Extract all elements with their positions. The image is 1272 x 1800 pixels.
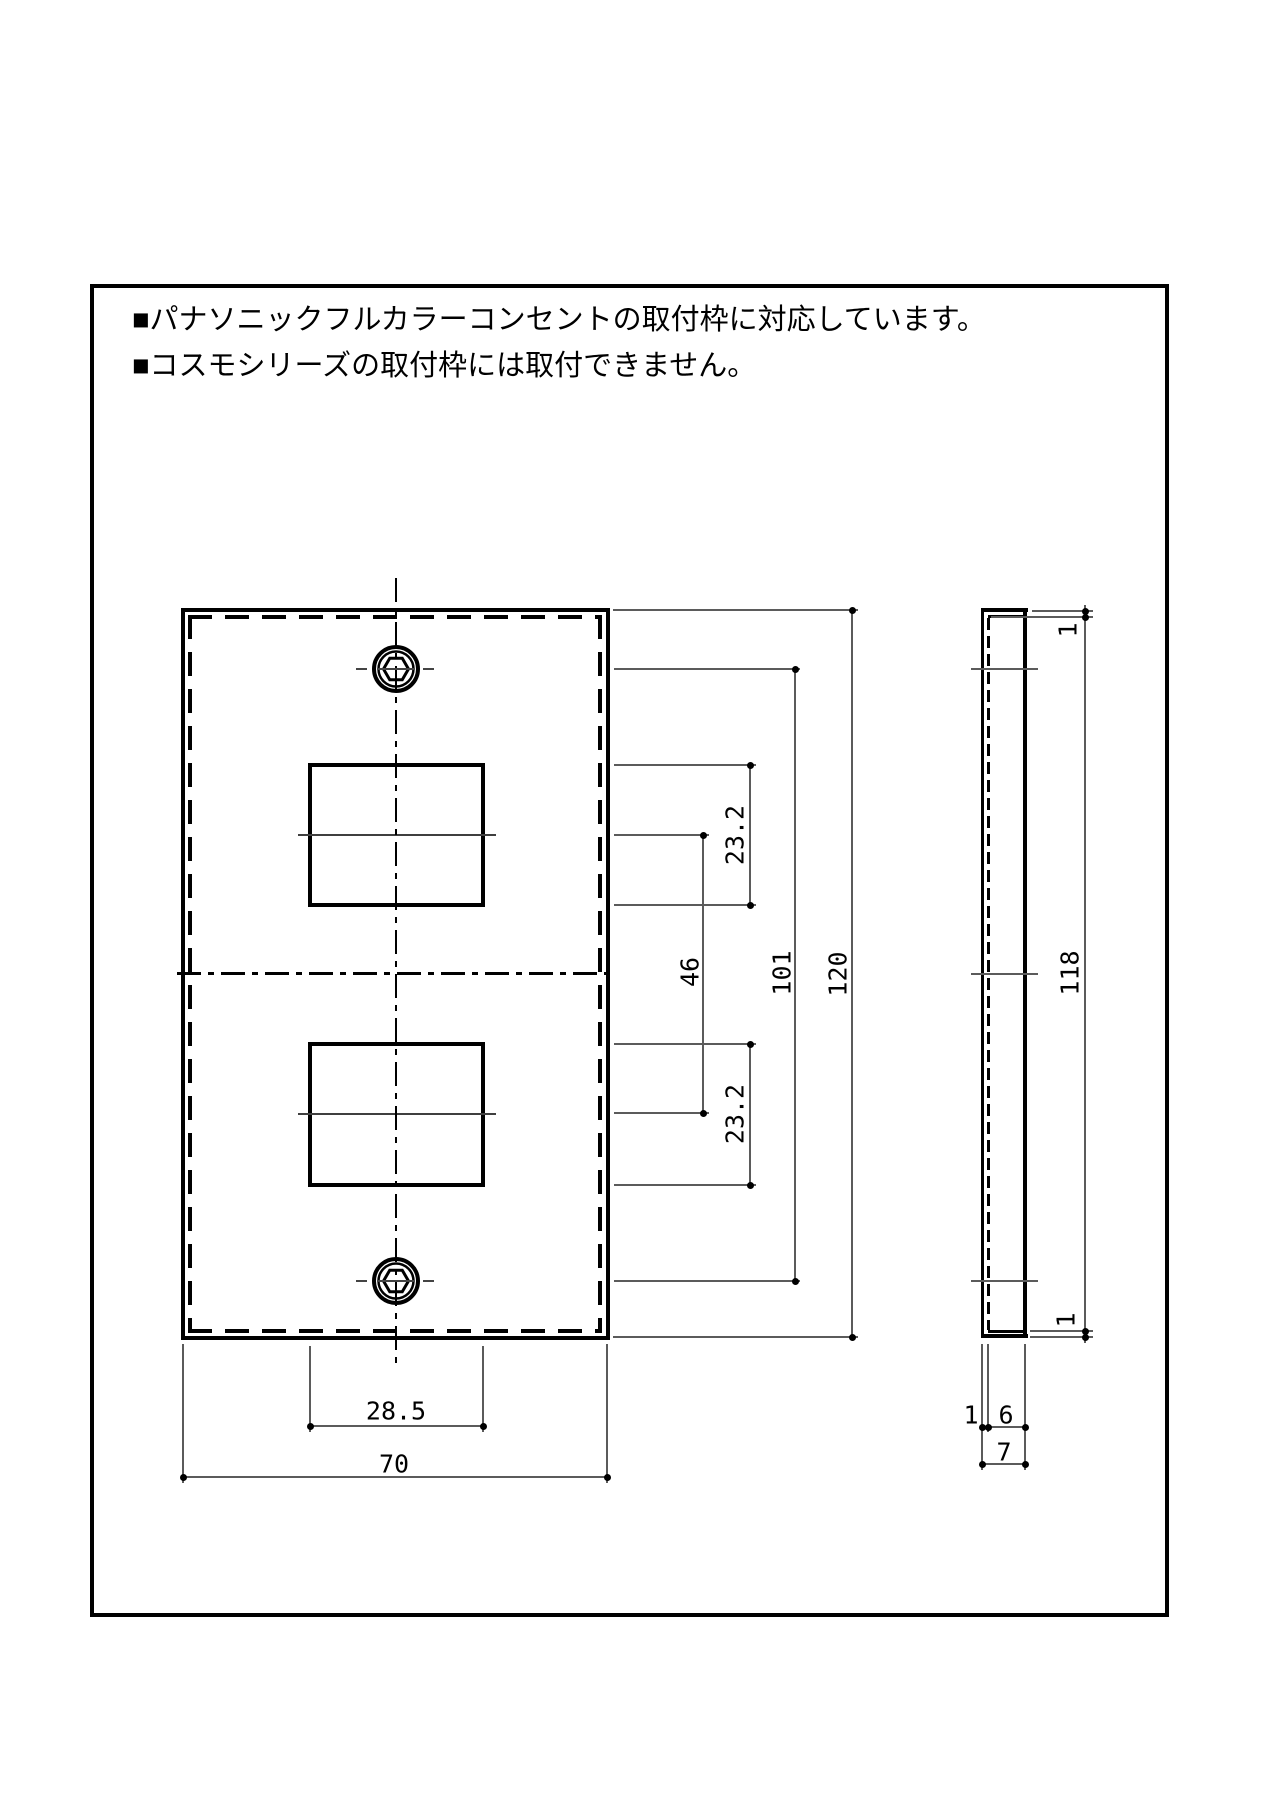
dim-endpoint xyxy=(1022,1461,1029,1468)
dim-endpoint xyxy=(1082,1334,1089,1341)
extension-line xyxy=(614,764,756,766)
dim-endpoint xyxy=(747,902,754,909)
dim-inner-height: 118 xyxy=(1058,950,1083,995)
dim-endpoint xyxy=(700,832,707,839)
dim-endpoint xyxy=(792,666,799,673)
screw-hole-top xyxy=(353,641,439,697)
side-mid-centerline xyxy=(971,973,1038,975)
extension-line xyxy=(1024,1344,1026,1470)
dim-endpoint xyxy=(747,1041,754,1048)
dim-opening-height-top: 23.2 xyxy=(723,805,748,865)
side-bottom-edge xyxy=(981,1334,1028,1338)
note-line-2: ■コスモシリーズの取付枠には取付できません。 xyxy=(132,349,756,384)
side-screw-top-line xyxy=(971,668,1038,670)
dim-endpoint xyxy=(792,1278,799,1285)
extension-line xyxy=(614,1112,709,1114)
dim-endpoint xyxy=(849,1334,856,1341)
extension-line xyxy=(991,616,1093,618)
extension-line xyxy=(182,1344,184,1483)
dim-endpoint xyxy=(604,1474,611,1481)
side-top-edge xyxy=(981,608,1028,612)
dim-endpoint xyxy=(747,762,754,769)
dim-inner-depth: 6 xyxy=(998,1403,1013,1428)
side-screw-bottom-line xyxy=(971,1280,1038,1282)
drawing-page: ■パナソニックフルカラーコンセントの取付枠に対応しています。 ■コスモシリーズの… xyxy=(0,0,1272,1800)
dim-endpoint xyxy=(849,607,856,614)
dim-bottom-thickness: 1 xyxy=(1054,1312,1079,1327)
opening-top-centerline xyxy=(298,834,496,836)
dim-opening-width: 28.5 xyxy=(366,1399,426,1424)
extension-line xyxy=(614,1043,756,1045)
dim-overall-height: 120 xyxy=(826,951,851,996)
extension-line xyxy=(614,1280,800,1282)
dim-endpoint xyxy=(700,1110,707,1117)
dim-opening-center-spacing: 46 xyxy=(678,957,703,987)
dim-endpoint xyxy=(985,1424,992,1431)
side-inner-bottom-edge xyxy=(988,1330,1027,1333)
dim-screw-hole-spacing: 101 xyxy=(770,950,795,995)
dim-opening-height-bottom: 23.2 xyxy=(723,1084,748,1144)
dim-endpoint xyxy=(480,1423,487,1430)
front-horizontal-centerline xyxy=(177,972,615,975)
note-line-1: ■パナソニックフルカラーコンセントの取付枠に対応しています。 xyxy=(132,303,986,338)
dim-overall-width: 70 xyxy=(379,1452,409,1477)
extension-line xyxy=(614,834,709,836)
dim-endpoint xyxy=(180,1474,187,1481)
extension-line xyxy=(482,1346,484,1432)
extension-line xyxy=(987,1344,989,1432)
extension-line xyxy=(614,668,800,670)
extension-line xyxy=(613,609,858,611)
dim-endpoint xyxy=(1082,614,1089,621)
dim-endpoint xyxy=(979,1461,986,1468)
dim-endpoint xyxy=(307,1423,314,1430)
dim-top-thickness: 1 xyxy=(1056,622,1081,637)
extension-line xyxy=(981,1344,983,1470)
extension-line xyxy=(606,1344,608,1483)
screw-hole-bottom xyxy=(353,1253,439,1309)
dim-wall-thickness: 1 xyxy=(963,1403,978,1428)
opening-bottom-centerline xyxy=(298,1113,496,1115)
extension-line xyxy=(614,904,756,906)
dim-overall-depth: 7 xyxy=(996,1440,1011,1465)
extension-line xyxy=(309,1346,311,1432)
extension-line xyxy=(613,1336,858,1338)
extension-line xyxy=(614,1184,756,1186)
dim-endpoint xyxy=(1022,1424,1029,1431)
dim-endpoint xyxy=(747,1182,754,1189)
